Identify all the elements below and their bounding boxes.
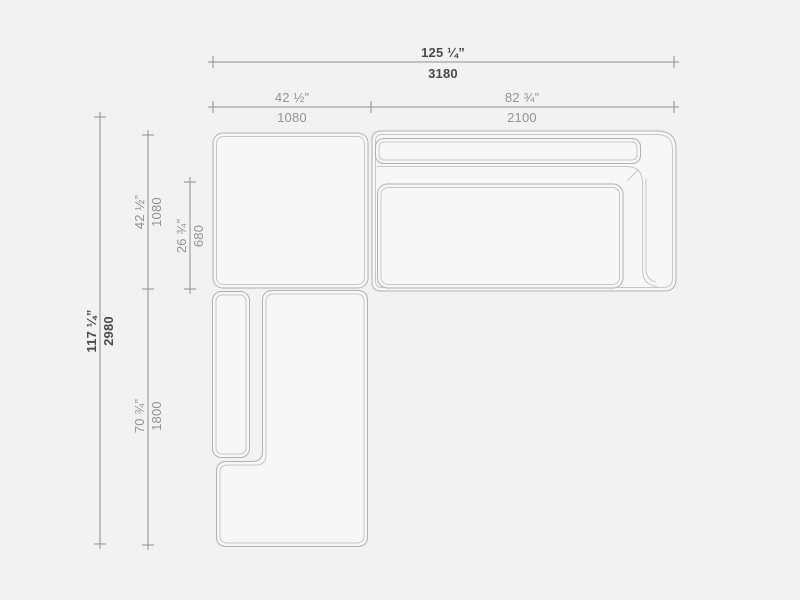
- label-corner-width-mm: 1080: [277, 110, 307, 125]
- label-seat-depth-inches: 26 ¾”: [174, 219, 189, 253]
- chaise-armrest-outline: [213, 292, 250, 458]
- label-corner-width-inches: 42 ½”: [275, 90, 309, 105]
- label-sofa-width-inches: 82 ¾”: [505, 90, 539, 105]
- label-corner-depth-mm: 1080: [149, 197, 164, 227]
- corner-module-outline: [213, 133, 368, 288]
- label-chaise-length-mm: 1800: [149, 401, 164, 431]
- label-overall-width-mm: 3180: [428, 66, 458, 81]
- label-overall-depth-inches: 117 ¼”: [84, 309, 99, 352]
- dim-line-corner-depth-chaise-length: [142, 130, 154, 550]
- label-overall-depth-mm: 2980: [101, 316, 116, 346]
- label-sofa-width-mm: 2100: [507, 110, 537, 125]
- sofa-plan-svg: 125 ¼” 3180 42 ½” 1080 82 ¾” 2100 117 ¼”…: [0, 0, 800, 600]
- technical-drawing: 125 ¼” 3180 42 ½” 1080 82 ¾” 2100 117 ¼”…: [0, 0, 800, 600]
- seat-cushion-outline: [378, 184, 624, 288]
- sofa-plan: [213, 131, 677, 547]
- label-seat-depth-mm: 680: [191, 225, 206, 247]
- label-overall-width-inches: 125 ¼”: [421, 45, 465, 60]
- label-chaise-length-inches: 70 ¾”: [132, 399, 147, 433]
- label-corner-depth-inches: 42 ½”: [132, 195, 147, 229]
- dimension-lines: [94, 56, 679, 550]
